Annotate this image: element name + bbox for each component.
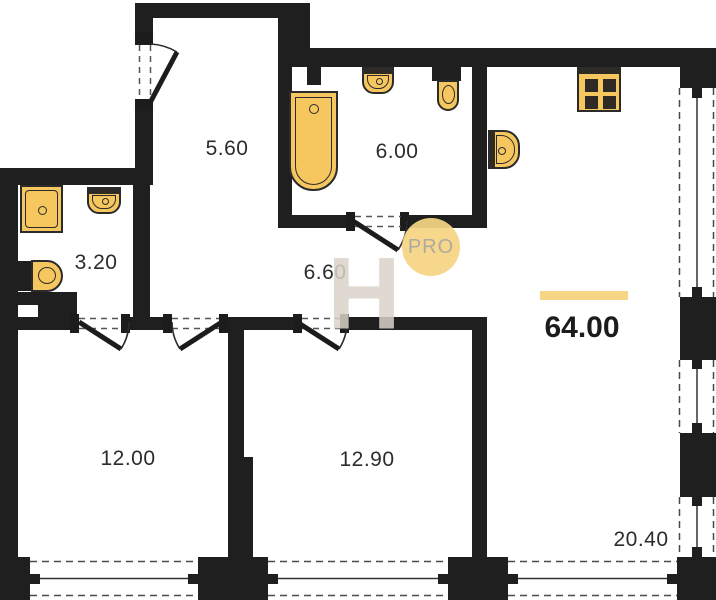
bed1-door1-post-left <box>70 314 79 333</box>
wall-corner-tr <box>680 67 716 88</box>
bed1-door2-post-left <box>163 314 172 333</box>
room-area-bathroom-small: 3.20 <box>75 251 118 275</box>
pier-right-2 <box>680 433 716 497</box>
bed1-door2-leaf <box>180 322 222 349</box>
toilet-tank-bath3 <box>18 261 31 291</box>
floor-plan: 5.60 6.00 3.20 6.60 12.00 12.90 20.40 64… <box>0 0 716 600</box>
wall-bath3-top <box>0 168 140 185</box>
watermark-pro-text: PRO <box>408 236 454 259</box>
shower-icon <box>20 185 63 233</box>
bed1-door1-leaf <box>79 322 121 349</box>
room-area-bedroom-2: 12.90 <box>339 448 394 472</box>
watermark-pro-badge: PRO <box>402 218 460 276</box>
room-area-bedroom-1: 12.00 <box>100 447 155 471</box>
toilet-icon-bath6 <box>437 80 459 111</box>
watermark-h-logo: H <box>327 236 401 353</box>
pier-right-1 <box>680 297 716 360</box>
wall-left-outer <box>0 168 18 600</box>
pier-bottom-1 <box>198 557 268 600</box>
bathtub-icon <box>289 91 338 191</box>
window-band-bottom <box>30 562 677 596</box>
toilet-tank-bath6 <box>432 65 461 81</box>
room-area-living-kitchen: 20.40 <box>613 528 668 552</box>
corner-bottom-right <box>677 557 716 600</box>
stove-icon <box>577 67 621 112</box>
wall-bath6-bottom-a <box>278 215 353 228</box>
room-area-bathroom-large: 6.00 <box>376 140 419 164</box>
wall-step-top <box>278 18 310 48</box>
wall-niche-stub <box>307 67 321 85</box>
wall-bed2-living <box>472 330 487 560</box>
wall-bed1-bed2-upper <box>228 330 244 457</box>
wall-hall-seg-c <box>220 317 300 330</box>
wall-notch <box>18 305 38 317</box>
wall-bath3-bottom <box>0 292 77 330</box>
window-tabs-bottom <box>30 574 677 584</box>
entry-door-arc <box>151 44 177 52</box>
bath6-door-post-left <box>346 212 355 231</box>
toilet-icon-bath3 <box>31 260 63 292</box>
wall-bath3-right <box>133 168 150 330</box>
sink-icon-bath6 <box>362 67 394 94</box>
bed1-door2-arc <box>172 322 180 349</box>
pier-bottom-2 <box>448 557 508 600</box>
entry-door-post-top <box>135 32 153 44</box>
wall-bed1-bed2-lower <box>228 457 253 560</box>
bed1-door2-post-right <box>219 314 228 333</box>
bed1-door1-post-right <box>121 314 130 333</box>
wall-top-right <box>292 48 716 67</box>
sink-icon-bath3 <box>87 187 121 214</box>
kitchen-sink-icon <box>488 130 520 169</box>
total-area-accent-bar <box>540 291 628 300</box>
corner-bottom-left <box>0 557 30 600</box>
entry-door-leaf <box>151 52 177 101</box>
total-area-label: 64.00 <box>544 311 619 345</box>
bed2-door-post-left <box>293 314 302 333</box>
wall-bath6-right <box>472 67 487 228</box>
entry-door-post-bottom <box>135 99 153 111</box>
wall-top-left <box>135 3 310 18</box>
room-area-hall-upper: 5.60 <box>206 137 249 161</box>
